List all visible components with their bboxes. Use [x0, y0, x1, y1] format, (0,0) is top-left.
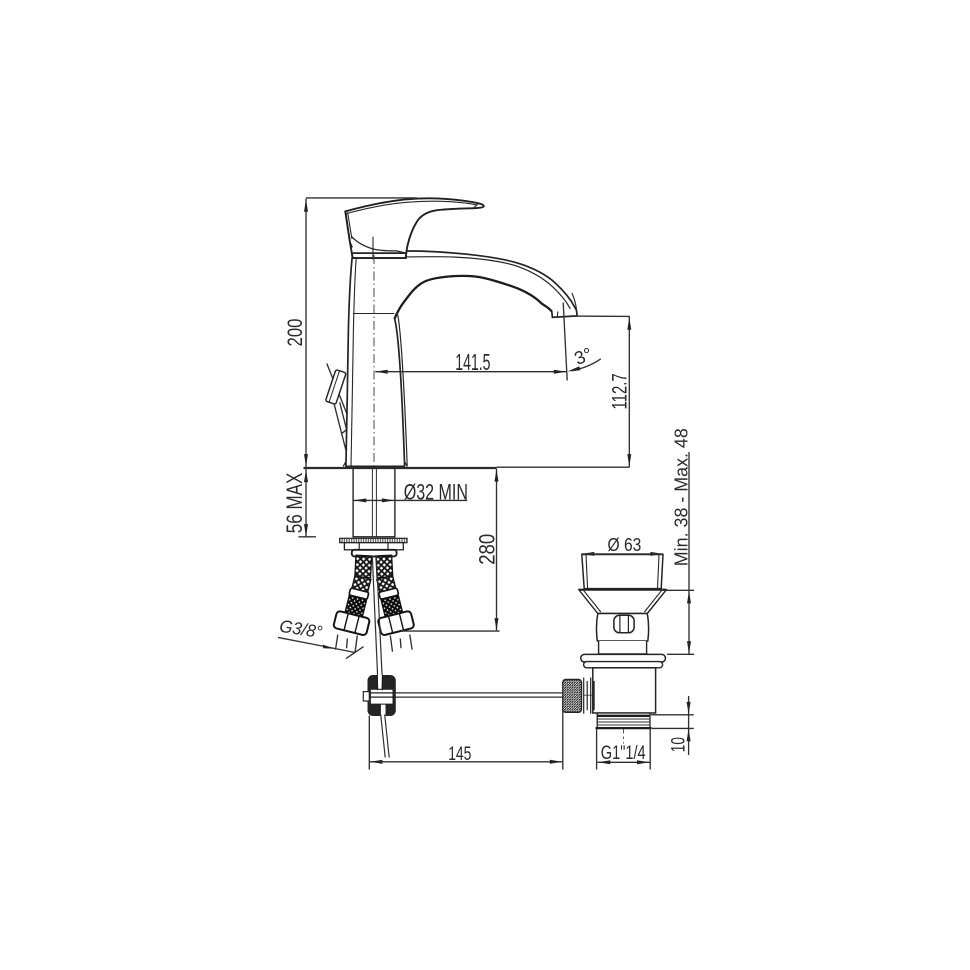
svg-text:Ø32 MIN: Ø32 MIN [404, 480, 468, 505]
svg-text:280: 280 [475, 534, 500, 565]
svg-text:145: 145 [448, 744, 471, 765]
svg-text:112.7: 112.7 [608, 373, 632, 409]
svg-text:10: 10 [667, 737, 689, 752]
svg-text:G1"1/4: G1"1/4 [601, 743, 646, 764]
svg-text:3°: 3° [571, 343, 595, 369]
svg-text:Min. 38 - Max. 48: Min. 38 - Max. 48 [670, 428, 691, 566]
svg-text:56 MAX: 56 MAX [282, 472, 307, 533]
svg-text:200: 200 [284, 319, 307, 347]
svg-text:141.5: 141.5 [455, 349, 490, 375]
svg-text:Ø 63: Ø 63 [608, 534, 642, 555]
